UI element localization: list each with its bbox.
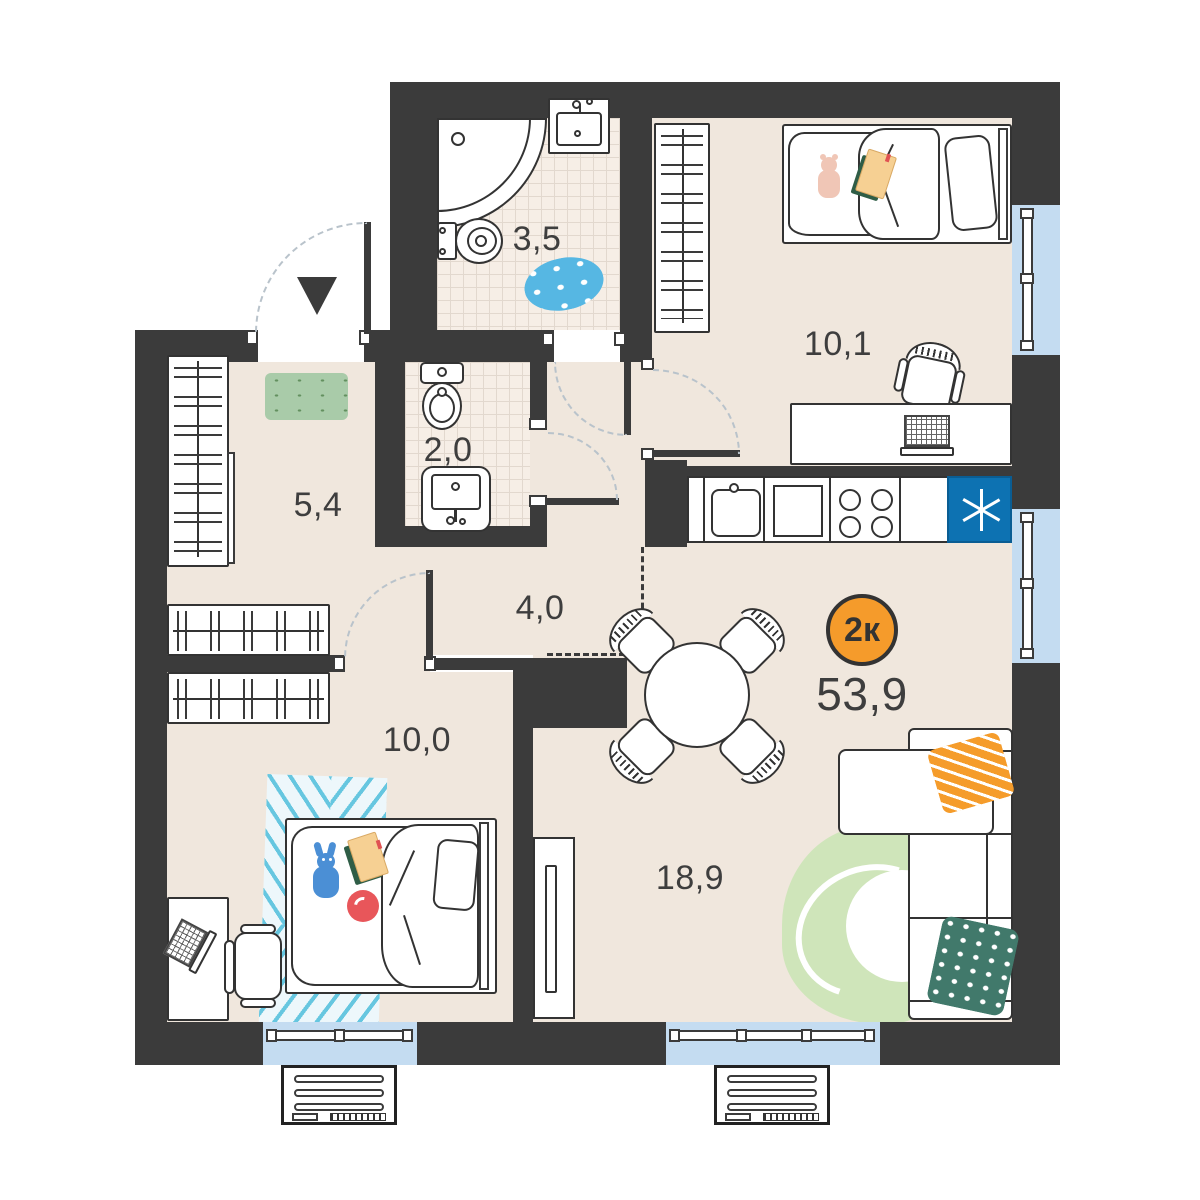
wall-kitchen-top <box>687 466 1012 476</box>
window-mullion <box>801 1029 812 1042</box>
drain-dot <box>574 130 581 137</box>
window-mullion <box>669 1029 680 1042</box>
ac-foot <box>292 1113 318 1121</box>
wall-bathroom-left <box>390 82 437 342</box>
wc-sink <box>421 466 491 532</box>
room-corridor-area-label: 4,0 <box>516 591 565 625</box>
door-jamb <box>542 332 554 346</box>
shower-drain <box>451 132 465 146</box>
room-hallway-area-label: 5,4 <box>294 488 343 522</box>
floor-plan: 3,5 2,0 5,4 4,0 10,1 10,0 18,9 2к 53,9 <box>0 0 1200 1200</box>
bathroom-sink <box>548 98 610 154</box>
red-ball <box>347 890 379 922</box>
room-bedroom-top-area-label: 10,1 <box>804 327 872 361</box>
bed-pillow <box>943 134 999 232</box>
tv-cabinet <box>533 837 575 1019</box>
bedroom-bottom-hanger-rack <box>167 672 330 724</box>
apartment-type-badge: 2к <box>826 594 898 666</box>
toy-bunny-eye <box>329 858 332 861</box>
door-jamb <box>614 332 626 346</box>
toy-bunny-body <box>313 866 339 898</box>
window-mullion <box>266 1029 277 1042</box>
sink-basin <box>556 112 602 146</box>
faucet <box>459 518 466 525</box>
wall-kitchen-left <box>645 460 687 547</box>
shower <box>437 118 547 228</box>
ac-grill <box>330 1113 386 1121</box>
ac-foot <box>725 1113 751 1121</box>
faucet <box>446 516 455 525</box>
window-mullion <box>334 1029 345 1042</box>
stove-burner <box>871 516 893 538</box>
room-wc-area-label: 2,0 <box>424 433 473 467</box>
bedroom-bottom-desk <box>167 897 229 1021</box>
door-jamb <box>529 418 547 430</box>
toy-bunny-eye <box>322 858 325 861</box>
door-jamb <box>529 495 547 507</box>
drain-dot <box>451 482 460 491</box>
room-bedroom-bottom-area-label: 10,0 <box>383 723 451 757</box>
stove-burner <box>871 489 893 511</box>
wall-bedroom-bottom-top <box>135 655 345 672</box>
bed-headboard <box>479 822 489 990</box>
bedroom-top-wardrobe <box>654 123 710 333</box>
hallway-wardrobe <box>167 355 229 567</box>
wall-left <box>135 330 167 1065</box>
window-mullion <box>736 1029 747 1042</box>
ac-slat <box>727 1089 817 1097</box>
ac-grill <box>763 1113 819 1121</box>
wall-bottom <box>417 1022 666 1065</box>
hallway-rug <box>265 373 348 420</box>
kitchen-faucet <box>729 483 739 493</box>
bed-headboard <box>998 128 1008 240</box>
room-bathroom-area-label: 3,5 <box>513 222 562 256</box>
bedroom-bottom-chair <box>224 924 284 1008</box>
tv-screen <box>545 865 557 993</box>
wall-bedroom-bottom-top <box>430 658 513 670</box>
window-frame <box>674 1030 872 1041</box>
wall-wc-right <box>530 343 547 430</box>
ac-unit <box>281 1065 397 1125</box>
hangers <box>174 367 222 553</box>
worktop-board <box>773 485 823 537</box>
dining-set <box>610 608 785 783</box>
faucet-stem <box>579 104 581 114</box>
tank-dot <box>437 367 447 377</box>
bed-pillow <box>432 838 480 911</box>
total-area-label: 53,9 <box>816 671 908 717</box>
wall-partition <box>513 728 533 1022</box>
sofa <box>838 728 1014 1020</box>
stove <box>829 476 901 543</box>
entrance-arrow-icon <box>297 277 337 315</box>
wall-right <box>1012 82 1060 205</box>
window-mullion <box>1020 273 1034 284</box>
window-mullion <box>1020 340 1034 351</box>
ac-slat <box>294 1089 384 1097</box>
room-living-area-label: 18,9 <box>656 861 724 895</box>
window-mullion <box>1020 208 1034 219</box>
kitchen-counter <box>899 476 949 543</box>
wc-toilet <box>418 360 466 434</box>
stove-burner <box>839 489 861 511</box>
tank-dot <box>439 248 446 255</box>
wall-right <box>1012 663 1060 1023</box>
window-mullion <box>1020 578 1034 589</box>
hangers <box>177 611 320 651</box>
ac-slat <box>294 1103 384 1111</box>
kitchen-sink-basin <box>711 489 761 537</box>
ac-unit <box>714 1065 830 1125</box>
wall-bathroom-bedroom <box>620 82 652 362</box>
bedroom-top-desk <box>790 403 1012 465</box>
ac-slat <box>294 1075 384 1083</box>
window-living-bottom <box>666 1022 880 1065</box>
hangers <box>177 679 320 719</box>
fridge <box>947 476 1012 543</box>
ball-line <box>350 893 375 918</box>
toilet-bowl-inner <box>429 393 455 423</box>
bathroom-toilet <box>437 216 509 266</box>
hallway-hanger-rack <box>167 604 330 656</box>
fridge-snowflake-icon <box>969 489 993 531</box>
kitchen-worktop <box>763 476 831 543</box>
ac-slat <box>727 1103 817 1111</box>
hangers <box>661 135 703 319</box>
chair-seat <box>234 932 282 1000</box>
faucet <box>586 98 593 105</box>
sink-basin <box>431 474 481 510</box>
window-mullion <box>402 1029 413 1042</box>
shower-inner-rim <box>437 118 531 212</box>
toilet-dot <box>475 235 487 247</box>
door-jamb <box>333 656 345 671</box>
window-mullion <box>1020 648 1034 659</box>
wall-bottom <box>880 1022 1060 1065</box>
wall-right <box>1012 355 1060 509</box>
window-mullion <box>1020 512 1034 523</box>
dining-table <box>644 642 750 748</box>
laptop <box>163 918 231 980</box>
toilet-dot <box>437 387 447 397</box>
stove-burner <box>839 516 861 538</box>
bedroom-bottom-bed <box>285 818 497 994</box>
wardrobe-door-panel <box>227 452 235 564</box>
teddy-bear-body <box>818 170 840 198</box>
laptop-base <box>900 447 954 456</box>
tank-dot <box>439 227 446 234</box>
window-mullion <box>864 1029 875 1042</box>
laptop-screen <box>904 415 950 447</box>
wall-wc-left <box>375 355 405 545</box>
kitchen-sink-unit <box>703 476 765 543</box>
wall-top <box>390 82 1060 118</box>
ac-slat <box>727 1075 817 1083</box>
bedroom-top-bed <box>782 124 1012 244</box>
